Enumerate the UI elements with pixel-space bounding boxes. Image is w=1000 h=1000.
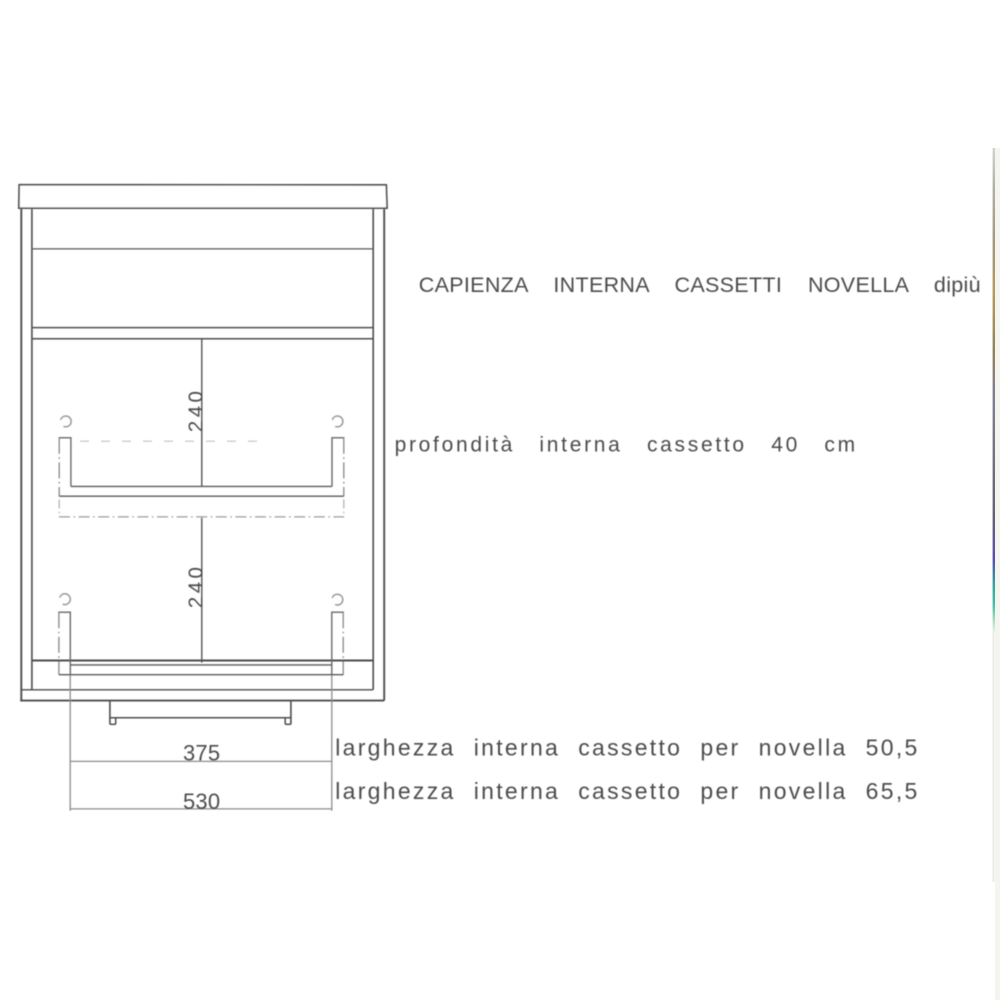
svg-text:240: 240 — [184, 564, 207, 608]
svg-text:240: 240 — [184, 388, 207, 432]
svg-text:375: 375 — [183, 740, 220, 765]
svg-text:530: 530 — [183, 789, 220, 814]
svg-text:larghezza interna cassetto per: larghezza interna cassetto per novella 6… — [335, 778, 919, 804]
svg-text:profondità interna cassetto 40: profondità interna cassetto 40 cm — [395, 434, 858, 457]
svg-text:larghezza interna cassetto per: larghezza interna cassetto per novella 5… — [335, 734, 919, 760]
svg-text:CAPIENZA INTERNA CASSETTI NOVE: CAPIENZA INTERNA CASSETTI NOVELLA dipiù — [419, 273, 981, 297]
